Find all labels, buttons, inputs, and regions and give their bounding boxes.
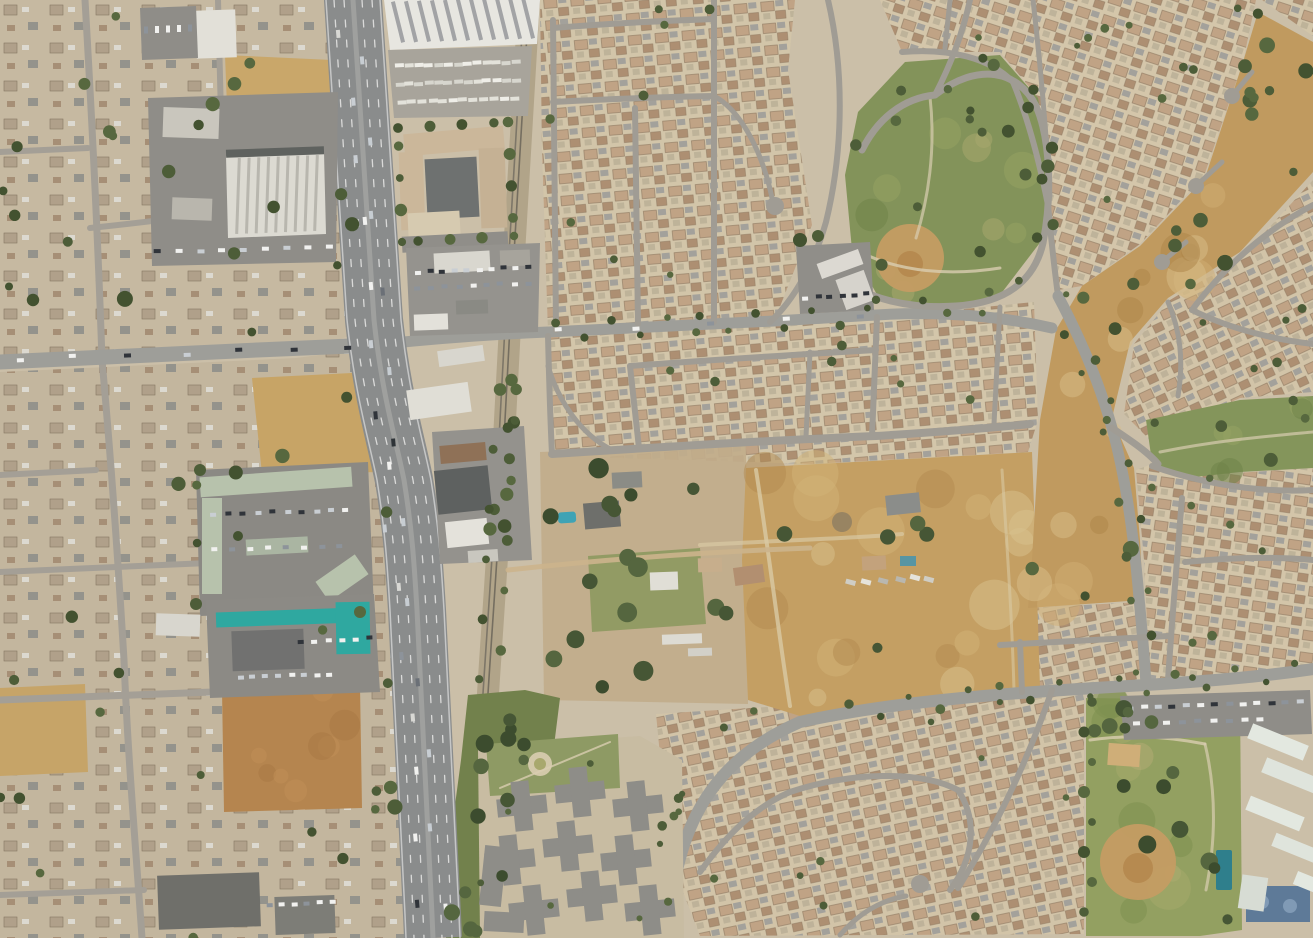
trees (1158, 94, 1167, 103)
trees (1166, 766, 1179, 779)
trees (1298, 63, 1313, 78)
trees (971, 912, 980, 921)
trees (1238, 59, 1252, 73)
trees (1185, 279, 1196, 290)
stored-vehicles (417, 99, 426, 103)
trees (229, 466, 243, 480)
highway-traffic (363, 217, 368, 225)
trees (494, 383, 507, 396)
parked-cars (452, 268, 458, 272)
park-mottle (1211, 462, 1230, 481)
street-trees (935, 704, 945, 714)
trees (1200, 319, 1207, 326)
parked-cars (144, 27, 148, 34)
trees (36, 869, 45, 878)
tree-line (850, 139, 861, 150)
highway-traffic (382, 524, 387, 532)
trees (162, 165, 175, 178)
trees (192, 481, 201, 490)
parked-cars (1269, 701, 1276, 705)
trees (975, 34, 982, 41)
trees (666, 367, 674, 375)
trees (14, 793, 25, 804)
dirt-mottle (273, 769, 288, 784)
trees (910, 516, 925, 531)
tree-line (500, 587, 508, 595)
parked-cars (428, 269, 434, 273)
parked-cars (526, 282, 532, 286)
parked-cars (328, 508, 334, 512)
street-trees (906, 694, 912, 700)
street-traffic (707, 321, 714, 325)
tree-line (502, 535, 513, 546)
trees (837, 341, 847, 351)
parked-cars (1240, 702, 1247, 706)
trees (1109, 322, 1122, 335)
parked-cars (176, 249, 183, 253)
parked-cars (283, 545, 289, 549)
trees (1168, 239, 1182, 253)
tree-line (506, 476, 515, 485)
trees (307, 827, 316, 836)
tree-line (1048, 219, 1059, 230)
street-trees (864, 305, 871, 312)
parked-cars (154, 249, 161, 253)
street-traffic (17, 358, 24, 362)
trees (1222, 914, 1232, 924)
parked-cars (1194, 719, 1201, 723)
stored-vehicles (407, 99, 416, 103)
highway-traffic (415, 678, 420, 686)
street-trees (1100, 429, 1107, 436)
parked-cars (211, 547, 217, 551)
trees (710, 377, 720, 387)
trees (1298, 304, 1307, 313)
apartment-building (484, 911, 525, 933)
street-trees (1091, 355, 1101, 365)
stored-vehicles (449, 98, 458, 102)
parked-cars (488, 267, 494, 271)
stored-vehicles (438, 99, 447, 103)
trees (639, 91, 649, 101)
parked-cars (255, 511, 261, 515)
school-building (1238, 874, 1268, 911)
trees (1259, 547, 1266, 554)
stored-vehicles (493, 78, 502, 82)
tree-line (475, 675, 483, 683)
trees (610, 255, 618, 263)
stored-vehicles (458, 97, 467, 101)
stored-vehicles (510, 96, 519, 100)
commercial-building (434, 465, 492, 514)
trees (470, 808, 485, 823)
trees (664, 898, 672, 906)
street-trees (607, 316, 616, 325)
trees (1265, 86, 1274, 95)
rural-house (612, 471, 643, 489)
parked-cars (262, 247, 269, 251)
trees (1002, 125, 1015, 138)
parked-cars (1226, 719, 1233, 723)
trees (193, 539, 202, 548)
dirt-mottle (284, 779, 307, 802)
trees (500, 793, 515, 808)
street-traffic (857, 314, 864, 318)
parked-cars (304, 245, 311, 249)
stored-vehicles (483, 60, 492, 64)
shed-row (662, 633, 702, 644)
street-trees (1087, 693, 1093, 699)
street-trees (1145, 587, 1152, 594)
highway-traffic (369, 211, 374, 219)
street-trees (780, 324, 788, 332)
parked-cars (319, 545, 325, 549)
street-trees (1263, 679, 1269, 685)
tree (190, 598, 202, 610)
parked-cars (314, 673, 320, 677)
trees (371, 805, 380, 814)
trees (913, 202, 922, 211)
trees (244, 58, 255, 69)
stored-vehicles (512, 59, 521, 63)
highway-traffic (351, 98, 356, 106)
parked-cars (1141, 704, 1148, 708)
parked-cars (283, 246, 290, 250)
trees (1206, 475, 1213, 482)
field-mottle (809, 689, 827, 707)
street (548, 336, 552, 454)
park-mottle (1006, 223, 1027, 244)
parked-cars (512, 266, 518, 270)
trees (1179, 63, 1188, 72)
parked-cars (330, 900, 336, 904)
tree-ring (396, 174, 404, 182)
tree-ring (425, 121, 436, 132)
tree-line (496, 645, 506, 655)
parked-cars (326, 638, 332, 642)
trees (206, 97, 220, 111)
stored-vehicles (444, 62, 453, 66)
trees (1041, 160, 1054, 173)
highway-traffic (391, 438, 396, 446)
trees (5, 283, 13, 291)
tree-line (1079, 727, 1090, 738)
trees (372, 786, 382, 796)
subdivision-north-central (540, 0, 812, 333)
trees (1081, 591, 1090, 600)
trees (318, 625, 327, 634)
trees (193, 120, 203, 130)
stored-vehicles (434, 80, 443, 84)
street-trees (1231, 665, 1238, 672)
parked-cars (155, 26, 159, 33)
stored-vehicles (482, 78, 491, 82)
parked-cars (326, 245, 333, 249)
street-trees (1125, 459, 1133, 467)
parked-cars (339, 638, 345, 642)
stored-vehicles (500, 97, 509, 101)
stored-vehicles (468, 98, 477, 102)
street-traffic (344, 346, 351, 350)
trees (1226, 521, 1234, 529)
trees (674, 794, 683, 803)
trees (383, 678, 393, 688)
tree-line (485, 505, 494, 514)
street-trees (551, 319, 560, 328)
trees (1126, 22, 1133, 29)
baseball-infield (897, 251, 923, 277)
street-trees (580, 334, 588, 342)
commercial-building (500, 249, 531, 266)
parked-cars (225, 511, 231, 515)
dirt-mottle (308, 732, 336, 760)
park-mottle (1120, 897, 1147, 924)
greenbelt-mottle (1090, 516, 1108, 534)
parked-cars (1168, 705, 1175, 709)
street-trees (1060, 330, 1069, 339)
trees (966, 107, 974, 115)
parked-cars (1211, 702, 1218, 706)
stored-vehicles (454, 62, 463, 66)
trees (978, 755, 984, 761)
parked-cars (826, 295, 832, 299)
trees (444, 904, 460, 920)
parked-cars (500, 265, 506, 269)
trees (345, 217, 359, 231)
parked-cars (525, 265, 531, 269)
trees (1156, 779, 1171, 794)
trees (816, 857, 824, 865)
parked-cars (463, 268, 469, 272)
trees (1272, 358, 1282, 368)
tree-ring (393, 123, 403, 133)
trees (979, 310, 986, 317)
parked-cars (301, 546, 307, 550)
trees (978, 128, 987, 137)
highway-traffic (387, 462, 392, 470)
trees (710, 875, 718, 883)
trees (687, 483, 699, 495)
swimming-pool (558, 511, 577, 523)
garden-center (534, 758, 546, 770)
trees (503, 713, 516, 726)
tree-ring (395, 204, 407, 216)
trees (582, 574, 598, 590)
field-mottle (916, 470, 955, 509)
field-mottle (811, 542, 835, 566)
trees (519, 755, 529, 765)
parked-cars (840, 294, 846, 298)
cul-de-sac (1188, 178, 1204, 194)
commercial-building (445, 518, 489, 548)
trees (1100, 24, 1109, 33)
street-trees (808, 307, 815, 314)
street-traffic (235, 348, 242, 352)
tree-line (1022, 102, 1034, 114)
tree-line (1078, 846, 1090, 858)
trees (667, 272, 673, 278)
parked-cars (1241, 717, 1248, 721)
trees (660, 21, 668, 29)
park-mottle (982, 218, 1004, 240)
trees (1193, 213, 1208, 228)
trees (974, 246, 985, 257)
tree-ring (445, 234, 456, 245)
burn-patch (832, 512, 852, 532)
highway-traffic (373, 411, 378, 419)
trees (596, 680, 609, 693)
building (156, 613, 201, 637)
tree-ring (413, 236, 422, 245)
trees (1189, 674, 1196, 681)
tree (354, 606, 366, 618)
commercial-building (456, 299, 488, 314)
trees (1189, 65, 1198, 74)
parked-cars (471, 283, 477, 287)
highway-traffic (380, 287, 385, 295)
street (553, 20, 556, 330)
stored-vehicles (501, 61, 510, 65)
tree-line (891, 116, 902, 127)
trees (1084, 34, 1092, 42)
trees (387, 799, 402, 814)
parked-cars (439, 270, 445, 274)
trees (511, 384, 522, 395)
court-circle (1283, 899, 1297, 913)
street-trees (1122, 552, 1132, 562)
tree-line (1078, 786, 1090, 798)
trees (880, 529, 895, 544)
highway-traffic (368, 137, 373, 145)
trees (483, 522, 496, 535)
tree-line (511, 416, 520, 425)
street-trees (1203, 684, 1211, 692)
parked-cars (336, 544, 342, 548)
field-mottle (955, 630, 980, 655)
tree-line (1028, 85, 1038, 95)
trees (1209, 862, 1221, 874)
stored-vehicles (398, 100, 407, 104)
street-trees (637, 332, 644, 339)
tree-line (1046, 142, 1058, 154)
trees (1253, 9, 1263, 19)
trees (607, 503, 621, 517)
trees (1207, 631, 1217, 641)
trees (1102, 718, 1118, 734)
map-canvas[interactable] (0, 0, 1313, 938)
stored-vehicles (443, 81, 452, 85)
highway-traffic (414, 767, 419, 775)
highway-traffic (369, 340, 374, 348)
trees (335, 188, 347, 200)
parked-cars (366, 635, 372, 639)
parked-cars (851, 293, 857, 297)
trees (966, 115, 974, 123)
street-trees (696, 312, 704, 320)
parked-cars (210, 513, 216, 517)
tree (194, 464, 206, 476)
trees (567, 218, 576, 227)
highway-traffic (415, 900, 420, 908)
trees (1138, 836, 1156, 854)
street-trees (844, 699, 853, 708)
street-trees (664, 314, 671, 321)
trees (545, 114, 554, 123)
trees (384, 781, 397, 794)
street-trees (751, 309, 760, 318)
trees (247, 328, 256, 337)
tree-line (1037, 174, 1048, 185)
trees (9, 675, 19, 685)
parked-cars (166, 26, 170, 33)
highway-traffic (399, 652, 404, 660)
highway-traffic (387, 367, 392, 375)
trees (1217, 255, 1233, 271)
street-trees (997, 699, 1003, 705)
trees (1103, 416, 1111, 424)
building (172, 197, 213, 220)
trees (1282, 317, 1289, 324)
trees (171, 477, 185, 491)
trees (1077, 292, 1089, 304)
parked-cars (497, 281, 503, 285)
stored-vehicles (512, 78, 521, 82)
trees (876, 259, 888, 271)
parked-cars (483, 283, 489, 287)
park-mottle (873, 174, 901, 202)
trees (1063, 794, 1070, 801)
trees (1127, 278, 1139, 290)
trees (624, 488, 637, 501)
highway-traffic (401, 518, 406, 526)
highway-traffic (428, 823, 433, 831)
parked-cars (326, 673, 332, 677)
parked-cars (289, 673, 295, 677)
trees (657, 821, 667, 831)
trees (337, 853, 348, 864)
street-trees (1133, 669, 1139, 675)
street-trees (1063, 291, 1069, 297)
dirt-mottle (251, 748, 267, 764)
shed (688, 648, 712, 657)
parked-cars (311, 640, 317, 644)
trees (333, 261, 341, 269)
street-traffic (291, 348, 298, 352)
tree-ring (489, 118, 498, 127)
building (162, 107, 219, 139)
building (195, 9, 237, 58)
trees (657, 841, 663, 847)
tree-ring (394, 141, 403, 150)
highway-traffic (336, 30, 341, 38)
field-house (885, 492, 921, 515)
trees (546, 651, 563, 668)
tree-line (896, 86, 906, 96)
trees (966, 395, 975, 404)
parked-cars (512, 282, 518, 286)
street-trees (965, 686, 972, 693)
parked-cars (292, 902, 298, 906)
trees (1289, 168, 1297, 176)
tree-line (489, 445, 498, 454)
cul-de-sac (1224, 88, 1240, 104)
street (1020, 642, 1022, 692)
parked-cars (1197, 703, 1204, 707)
tree-ring (476, 232, 487, 243)
trees (1234, 5, 1242, 13)
trees (228, 77, 242, 91)
stored-vehicles (414, 82, 423, 86)
